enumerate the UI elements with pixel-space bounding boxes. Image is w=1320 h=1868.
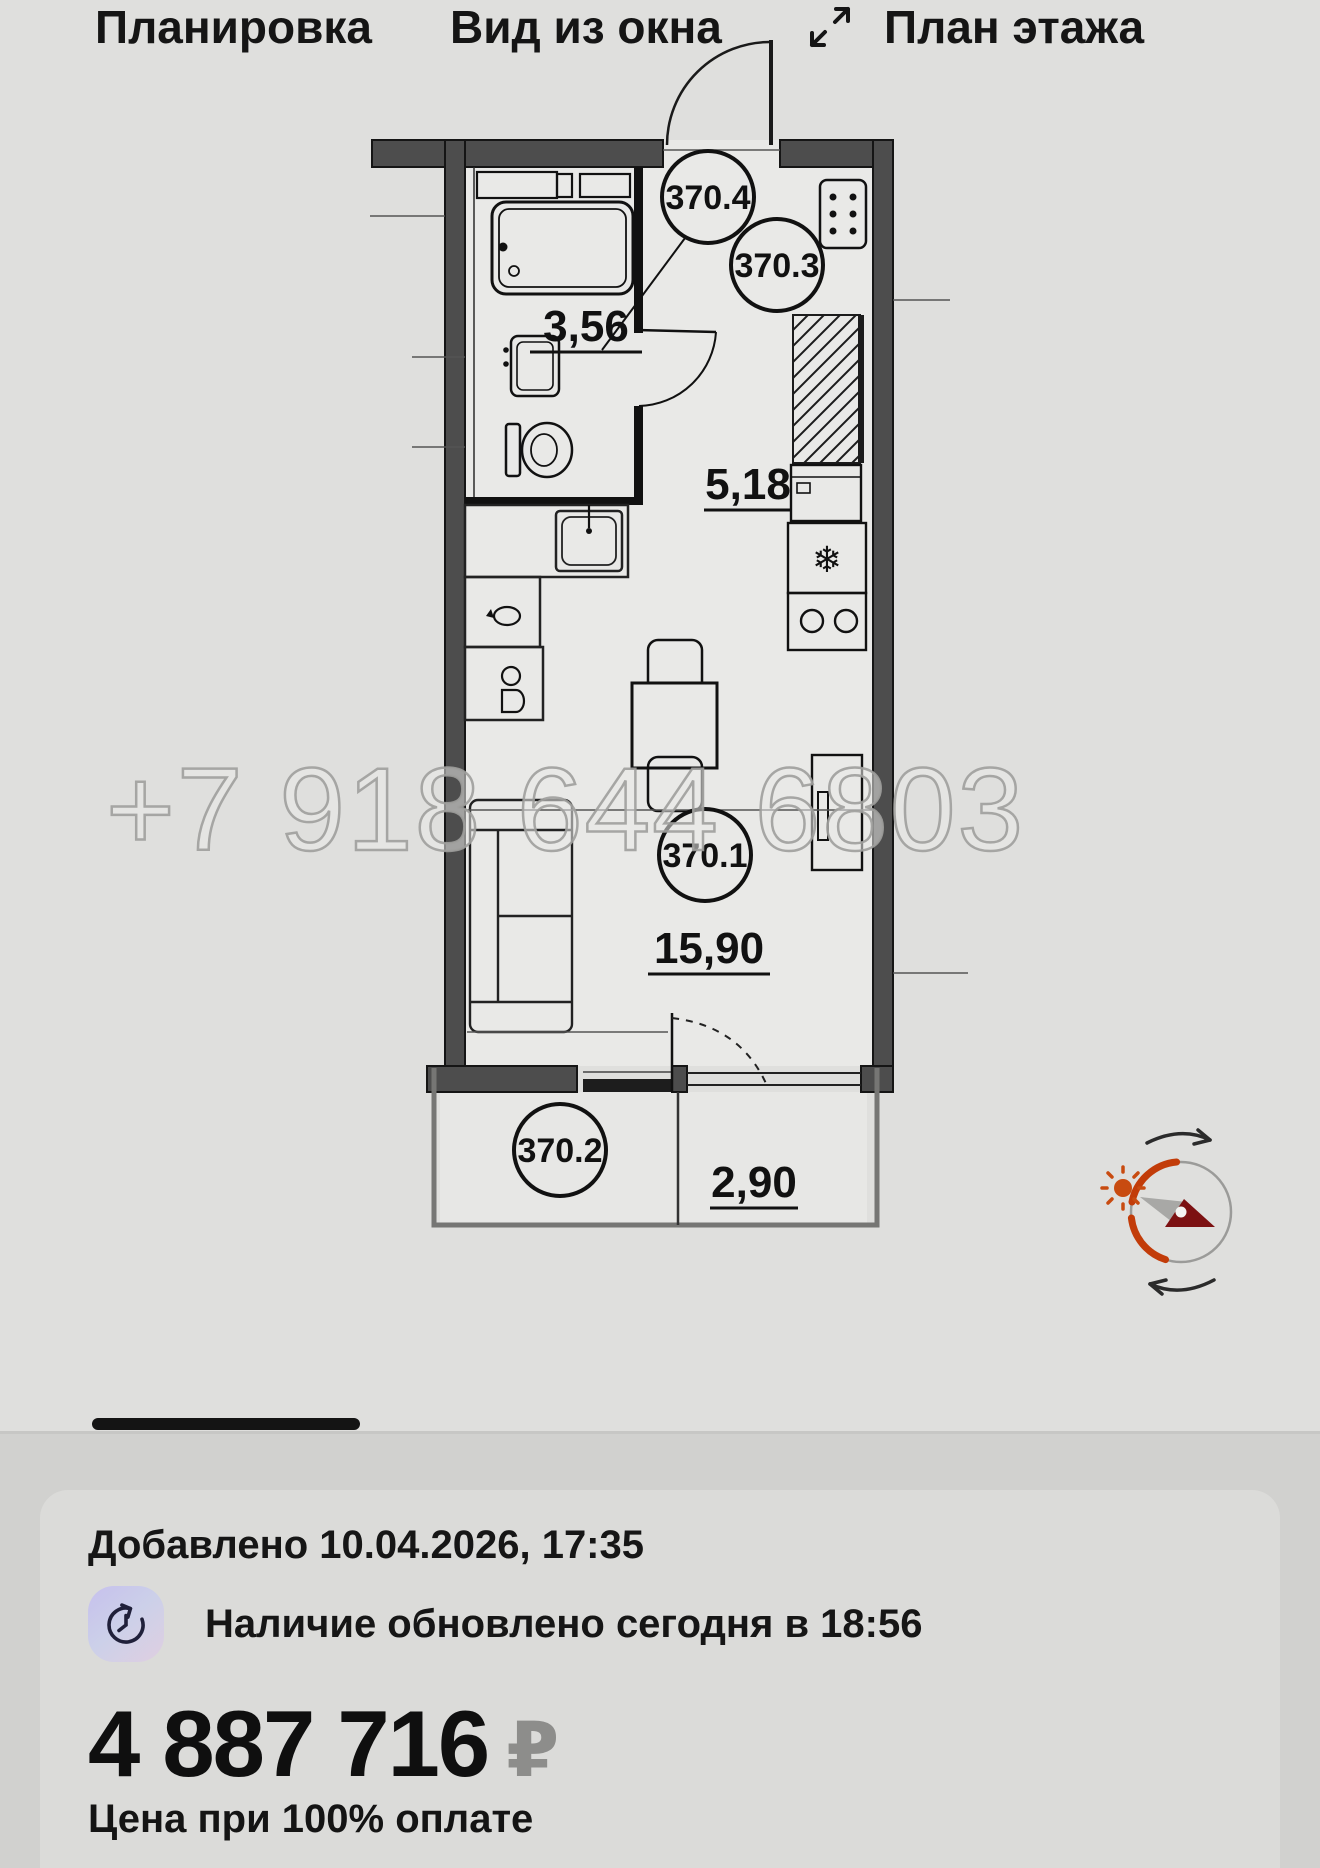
availability-icon-bubble [88, 1586, 164, 1662]
electric-panel [820, 180, 866, 248]
active-tab-underline [92, 1418, 360, 1430]
listing-info-card: Добавлено 10.04.2026, 17:35 Наличие обно… [40, 1490, 1280, 1868]
watermark-phone: +7 918 644 6803 [106, 744, 1025, 876]
room-circle-370-3: 370.3 [731, 219, 823, 311]
area-kitchen: 5,18 [705, 460, 791, 509]
floor-plan-image: ❄ [0, 0, 1320, 1340]
tab-vid-iz-okna[interactable]: Вид из окна [450, 0, 722, 54]
bathtub-icon [492, 202, 633, 294]
compass-widget [1102, 1130, 1231, 1294]
history-clock-icon [103, 1601, 149, 1647]
price-note: Цена при 100% оплате [88, 1796, 533, 1842]
svg-text:370.2: 370.2 [517, 1132, 602, 1170]
expand-icon[interactable] [806, 3, 854, 51]
tab-label: План этажа [884, 0, 1144, 54]
svg-text:370.3: 370.3 [734, 247, 819, 285]
room-circle-370-4: 370.4 [662, 151, 754, 243]
tab-planirovka[interactable]: Планировка [95, 0, 372, 54]
ruble-sign: ₽ [506, 1705, 559, 1794]
availability-text: Наличие обновлено сегодня в 18:56 [205, 1601, 922, 1647]
price-amount: 4 887 716 [88, 1694, 488, 1794]
area-bathroom: 3,56 [543, 302, 629, 351]
balcony-floor [440, 1092, 867, 1223]
area-living: 15,90 [654, 924, 764, 973]
tab-label: Вид из окна [450, 1, 722, 53]
area-balcony: 2,90 [711, 1158, 797, 1207]
price-row: 4 887 716 ₽ [88, 1694, 559, 1794]
sun-icon [1102, 1167, 1144, 1209]
tab-label: Планировка [95, 1, 372, 53]
media-tabs: Планировка Вид из окна План этажа [0, 0, 1320, 72]
compass-needle-icon [1140, 1197, 1215, 1227]
snowflake-icon: ❄ [812, 539, 842, 580]
room-circle-370-2: 370.2 [514, 1104, 606, 1196]
tab-plan-etazha[interactable]: План этажа [806, 0, 1144, 54]
added-date-text: Добавлено 10.04.2026, 17:35 [88, 1522, 644, 1568]
svg-text:370.4: 370.4 [665, 179, 750, 217]
listing-page: ❄ [0, 0, 1320, 1868]
